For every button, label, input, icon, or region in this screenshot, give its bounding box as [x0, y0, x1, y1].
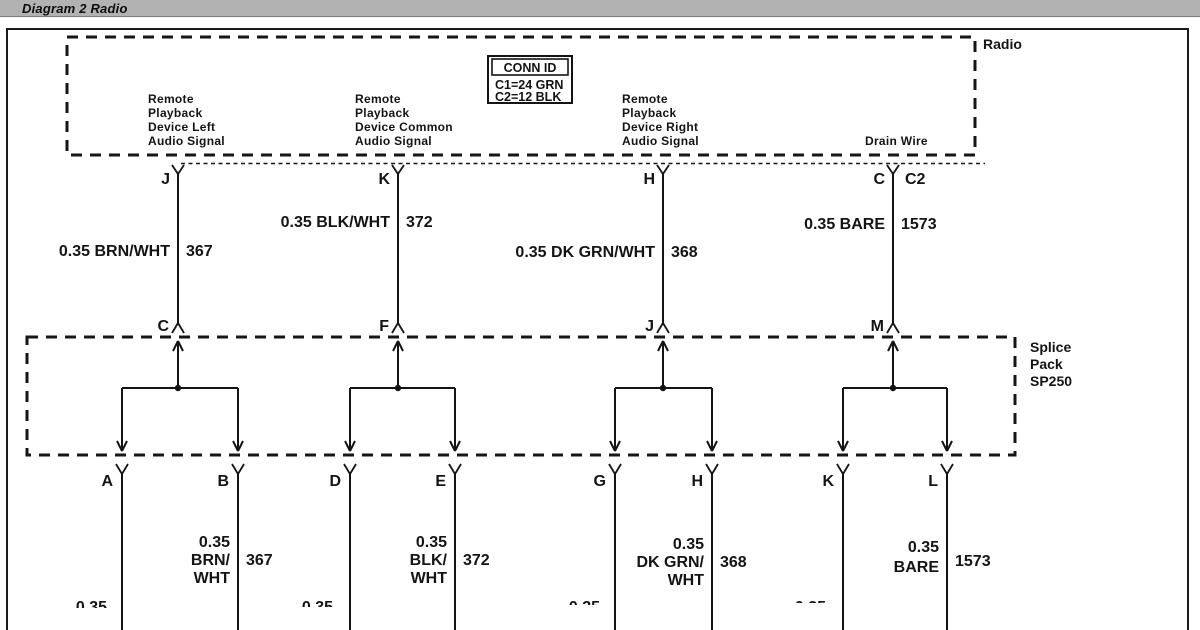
splice-pin-letter: M	[871, 318, 884, 335]
wire-label: 0.35 BRN/WHT	[59, 243, 170, 260]
wire-label: 0.35 BLK/WHT	[281, 214, 391, 231]
signal-label-line: Drain Wire	[865, 134, 928, 148]
wire-label-line: 0.35	[199, 534, 230, 551]
splice-pack-dashed-outline	[27, 337, 1015, 455]
scan-cutoff-mask	[64, 608, 111, 630]
arrow-down-icon	[450, 388, 460, 451]
arrow-down-icon	[707, 388, 717, 451]
circuit-number: 368	[720, 554, 747, 571]
arrow-down-icon	[610, 388, 620, 451]
arrow-down-icon	[233, 388, 243, 451]
wire-label-line: 0.35	[416, 534, 447, 551]
conn-id-legend: CONN ID C1=24 GRN C2=12 BLK	[488, 56, 572, 104]
radio-pin-letter: K	[378, 171, 390, 188]
arrow-up-icon	[173, 341, 183, 388]
connector-fork-icon	[657, 165, 669, 174]
connector-fork-icon	[116, 464, 128, 474]
splice-pin-letter: D	[329, 473, 341, 490]
signal-label-line: Audio Signal	[355, 134, 432, 148]
scan-cutoff-mask	[557, 605, 604, 630]
splice-pin-letter: G	[594, 473, 606, 490]
circuit-number: 367	[246, 552, 273, 569]
connector-fork-icon	[887, 323, 899, 333]
arrow-down-icon	[117, 388, 127, 451]
radio-box-label: Radio	[983, 36, 1022, 52]
connector-fork-icon	[941, 464, 953, 474]
circuit-number: 367	[186, 243, 213, 260]
arrow-up-icon	[888, 341, 898, 388]
wire-label-line: BARE	[894, 559, 940, 576]
splice-pack-label-line: Pack	[1030, 356, 1063, 372]
scan-cutoff-mask	[290, 607, 337, 630]
connector-fork-icon	[609, 464, 621, 474]
splice-pack-label-line: SP250	[1030, 373, 1072, 389]
connector-fork-icon	[887, 165, 899, 174]
connector-fork-icon	[172, 165, 184, 174]
connector-fork-icon	[392, 323, 404, 333]
signal-label-line: Audio Signal	[148, 134, 225, 148]
scan-cutoff-mask	[783, 603, 830, 630]
splice-pin-letter: K	[822, 473, 834, 490]
splice-bottom-pins: A B D E G H K L	[101, 464, 953, 490]
connector-fork-icon	[172, 323, 184, 333]
wiring-diagram: Radio CONN ID C1=24 GRN C2=12 BLK Remote…	[0, 0, 1200, 630]
connector-fork-icon	[392, 165, 404, 174]
window-title: Diagram 2 Radio	[22, 1, 128, 16]
arrow-up-icon	[393, 341, 403, 388]
wire-label-line: 0.35	[673, 536, 704, 553]
wires-radio-to-splice: 0.35 BRN/WHT 367 0.35 BLK/WHT 372 0.35 D…	[59, 174, 937, 323]
connector-fork-icon	[706, 464, 718, 474]
window-titlebar: Diagram 2 Radio	[0, 0, 1200, 17]
conn-id-header: CONN ID	[504, 61, 557, 75]
circuit-number: 1573	[955, 553, 991, 570]
signal-label-line: Playback	[622, 106, 676, 120]
splice-pin-letter: B	[217, 473, 229, 490]
wire-label-line: BRN/	[191, 552, 231, 569]
splice-pin-letter: L	[928, 473, 938, 490]
splice-top-pins: C F J M	[157, 318, 899, 335]
signal-label-line: Remote	[622, 92, 668, 106]
connector-c2-label: C2	[905, 171, 926, 188]
circuit-number: 368	[671, 244, 698, 261]
wire-label-line: WHT	[668, 572, 705, 589]
arrow-down-icon	[838, 388, 848, 451]
wire-label: 0.35 DK GRN/WHT	[515, 244, 655, 261]
signal-label-line: Playback	[355, 106, 409, 120]
radio-connector-row: J K H C C2	[161, 164, 985, 189]
circuit-number: 1573	[901, 216, 937, 233]
wire-label-line: 0.35	[908, 539, 939, 556]
connector-fork-icon	[657, 323, 669, 333]
connector-fork-icon	[449, 464, 461, 474]
splice-pin-letter: C	[157, 318, 169, 335]
conn-id-row-c2: C2=12 BLK	[495, 90, 561, 104]
diagram-viewer-window: Diagram 2 Radio Radio CONN ID C1=24 GRN …	[0, 0, 1200, 630]
splice-branches	[117, 341, 952, 451]
radio-pin-letter: C	[873, 171, 885, 188]
wire-label: 0.35 BARE	[804, 216, 885, 233]
signal-label-line: Remote	[355, 92, 401, 106]
wire-label-line: WHT	[411, 570, 448, 587]
signal-label-line: Audio Signal	[622, 134, 699, 148]
wire-label-line: WHT	[194, 570, 231, 587]
splice-pack-label-line: Splice	[1030, 339, 1071, 355]
splice-pin-letter: J	[645, 318, 654, 335]
signal-label-line: Playback	[148, 106, 202, 120]
wire-label-line: BLK/	[410, 552, 448, 569]
signal-label-line: Device Left	[148, 120, 215, 134]
signal-label-line: Device Common	[355, 120, 453, 134]
arrow-down-icon	[942, 388, 952, 451]
circuit-number: 372	[406, 214, 433, 231]
wires-below-splice: 0.35 BRN/ WHT 367 0.35 BLK/ WHT 372 0.35…	[64, 474, 991, 630]
radio-pin-letter: J	[161, 171, 170, 188]
arrow-down-icon	[345, 388, 355, 451]
splice-pin-letter: A	[101, 473, 113, 490]
signal-label-line: Remote	[148, 92, 194, 106]
splice-pin-letter: H	[691, 473, 703, 490]
connector-fork-icon	[837, 464, 849, 474]
splice-pin-letter: F	[379, 318, 389, 335]
splice-pin-letter: E	[435, 473, 446, 490]
splice-pack-box: Splice Pack SP250	[27, 337, 1072, 455]
connector-fork-icon	[232, 464, 244, 474]
circuit-number: 372	[463, 552, 490, 569]
wire-label-line: DK GRN/	[636, 554, 704, 571]
arrow-up-icon	[658, 341, 668, 388]
radio-pin-letter: H	[643, 171, 655, 188]
signal-label-line: Device Right	[622, 120, 698, 134]
titlebar-highlight	[0, 17, 1200, 18]
connector-fork-icon	[344, 464, 356, 474]
